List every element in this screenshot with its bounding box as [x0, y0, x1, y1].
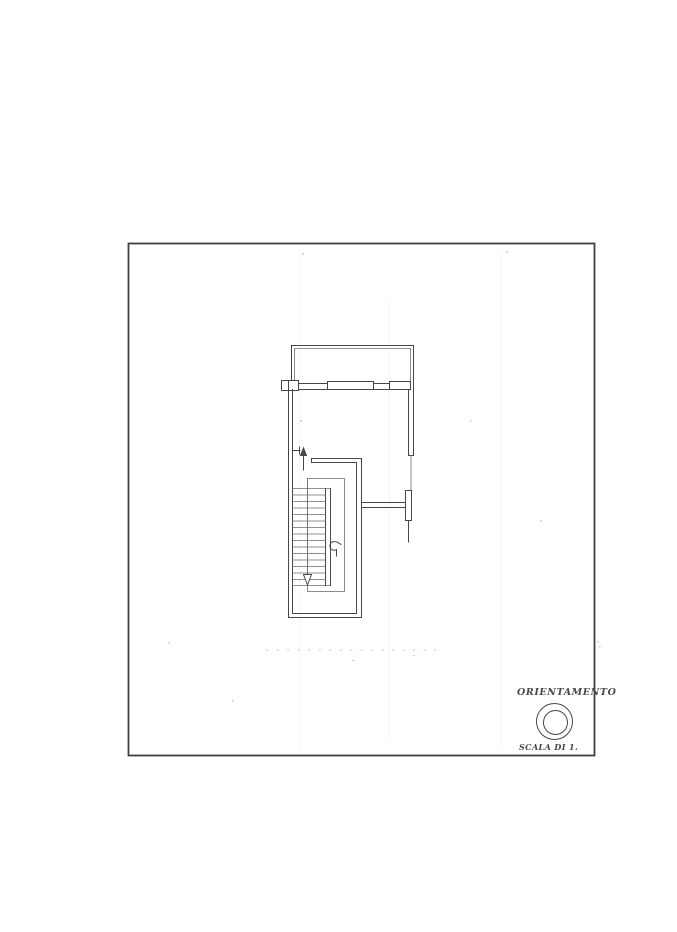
wall-pier [282, 381, 299, 391]
stair-flight [293, 489, 331, 586]
scan-artifacts [168, 250, 601, 750]
arrow-up-icon [300, 447, 307, 457]
double-circle-inner-icon [543, 710, 568, 735]
orientation-label: ORIENTAMENTO [517, 688, 616, 698]
stair-treads [293, 495, 326, 580]
scale-label: SCALA DI 1. [519, 743, 578, 751]
scanned-floorplan-page: ORIENTAMENTO SCALA DI 1. [0, 0, 677, 932]
balcony-outline [292, 346, 414, 386]
top-wall-and-windows [282, 381, 411, 391]
right-exterior-wall [406, 382, 414, 543]
floor-plan-drawing [0, 0, 677, 932]
window-1 [328, 382, 374, 390]
curl-icon [330, 542, 341, 556]
stair-stringer [326, 489, 331, 586]
left-exterior-wall [289, 382, 301, 618]
interior-walls [289, 459, 406, 618]
entry-arrow [300, 447, 307, 471]
stair-walk-line [304, 479, 342, 586]
wall-end-cap [406, 491, 412, 521]
stairwell-right-wall [357, 459, 362, 618]
door-jamb-tick [293, 447, 300, 454]
stairwell-top-wall [312, 459, 362, 463]
protruding-wall [362, 503, 406, 508]
window-2 [390, 382, 411, 390]
